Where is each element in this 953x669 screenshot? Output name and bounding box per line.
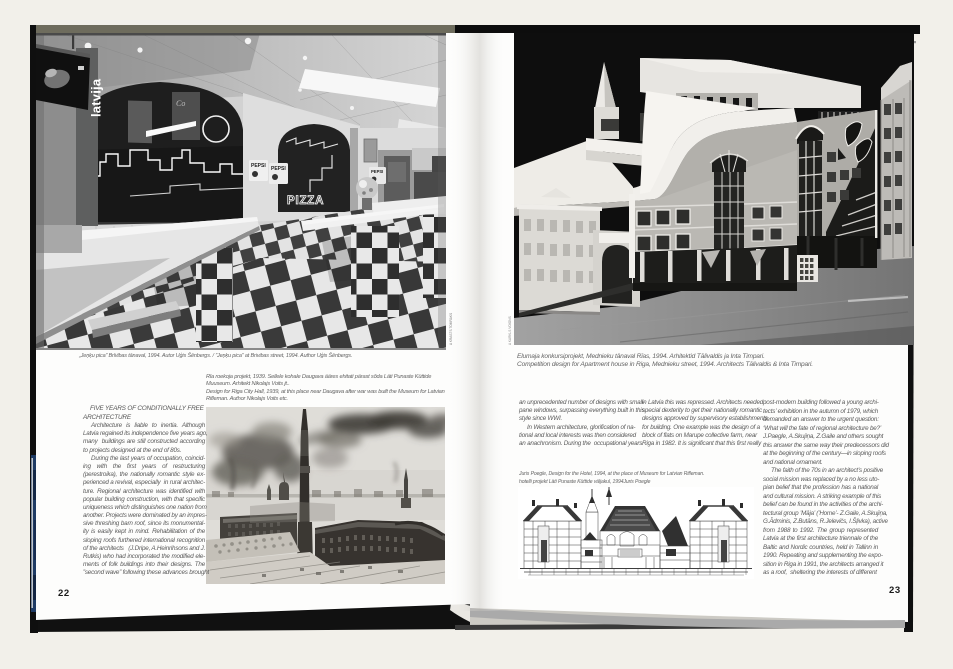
svg-text:latvija: latvija — [89, 78, 104, 117]
svg-text:PEPSI: PEPSI — [371, 169, 383, 174]
svg-text:PEPSI: PEPSI — [251, 163, 266, 169]
svg-text:PIZZA: PIZZA — [287, 195, 324, 207]
svg-text:A KRASTS TOMRAKS: A KRASTS TOMRAKS — [449, 313, 453, 345]
svg-text:PEPSI: PEPSI — [271, 166, 286, 172]
svg-text:Co: Co — [176, 99, 185, 108]
svg-text:A KARKLS VOIONS: A KARKLS VOIONS — [508, 316, 512, 345]
